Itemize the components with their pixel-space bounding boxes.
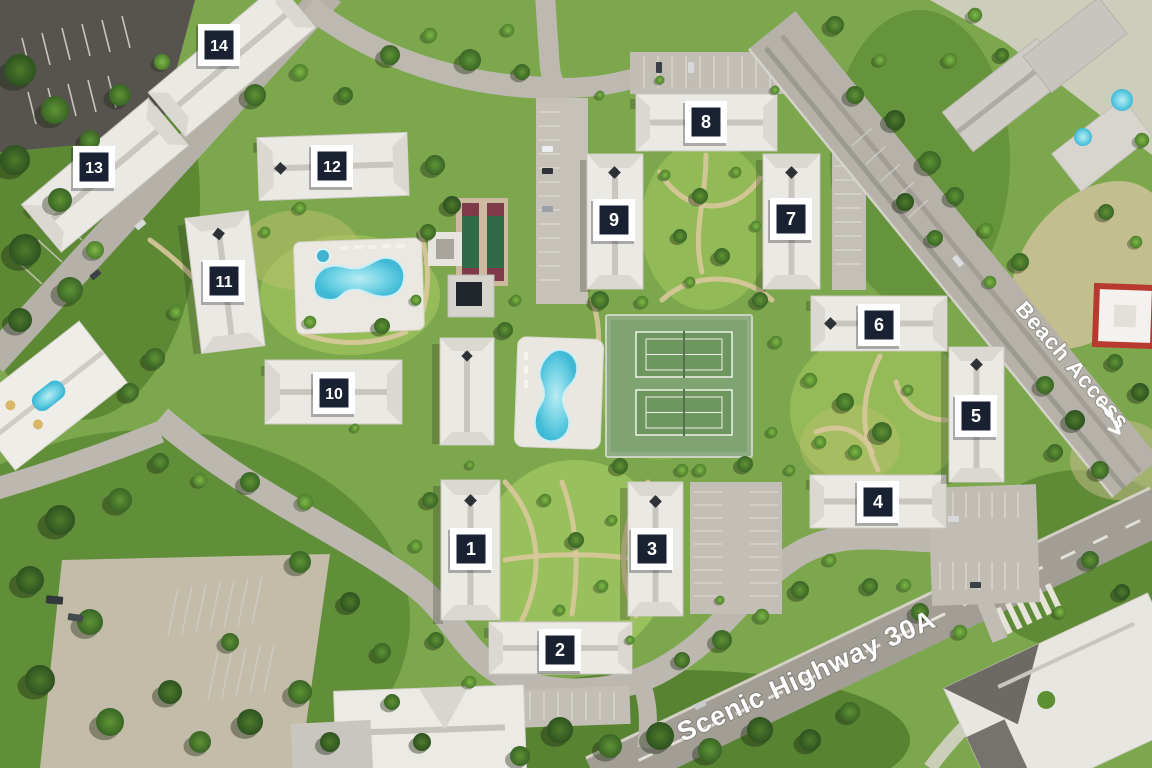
building-marker-4: 4 [855,481,899,526]
svg-text:4: 4 [873,492,883,512]
svg-text:5: 5 [971,406,981,426]
building-marker-6: 6 [856,304,900,349]
aerial-photo: Beach Access Scenic Highway 30A 12345678… [0,0,1152,768]
aerial-site-map: Beach Access Scenic Highway 30A 12345678… [0,0,1152,768]
building-marker-12: 12 [309,145,353,190]
building-marker-3: 3 [629,528,673,573]
building-marker-13: 13 [71,146,115,191]
svg-text:3: 3 [647,539,657,559]
shuffleboard-courts [456,198,508,286]
svg-text:1: 1 [466,539,476,559]
building-marker-8: 8 [683,101,727,146]
tennis-courts [606,315,752,457]
building-marker-1: 1 [448,528,492,573]
svg-text:14: 14 [210,38,228,55]
building-marker-7: 7 [768,198,812,243]
svg-text:13: 13 [85,160,103,177]
building-marker-10: 10 [311,372,355,417]
parking-lot-b3 [690,482,782,614]
red-roof-building [1095,286,1152,346]
svg-text:12: 12 [323,159,341,176]
svg-text:8: 8 [701,112,711,132]
svg-text:10: 10 [325,386,343,403]
svg-text:11: 11 [216,274,233,291]
building-marker-14: 14 [196,24,240,69]
svg-text:9: 9 [609,210,619,230]
svg-text:2: 2 [555,640,565,660]
building-marker-2: 2 [537,629,581,674]
building-marker-9: 9 [591,199,635,244]
building-marker-5: 5 [953,395,997,440]
building-marker-11: 11 [201,260,245,305]
svg-text:7: 7 [786,209,796,229]
gravel-lot [40,554,330,768]
main-pool [514,337,604,450]
svg-text:6: 6 [874,315,884,335]
